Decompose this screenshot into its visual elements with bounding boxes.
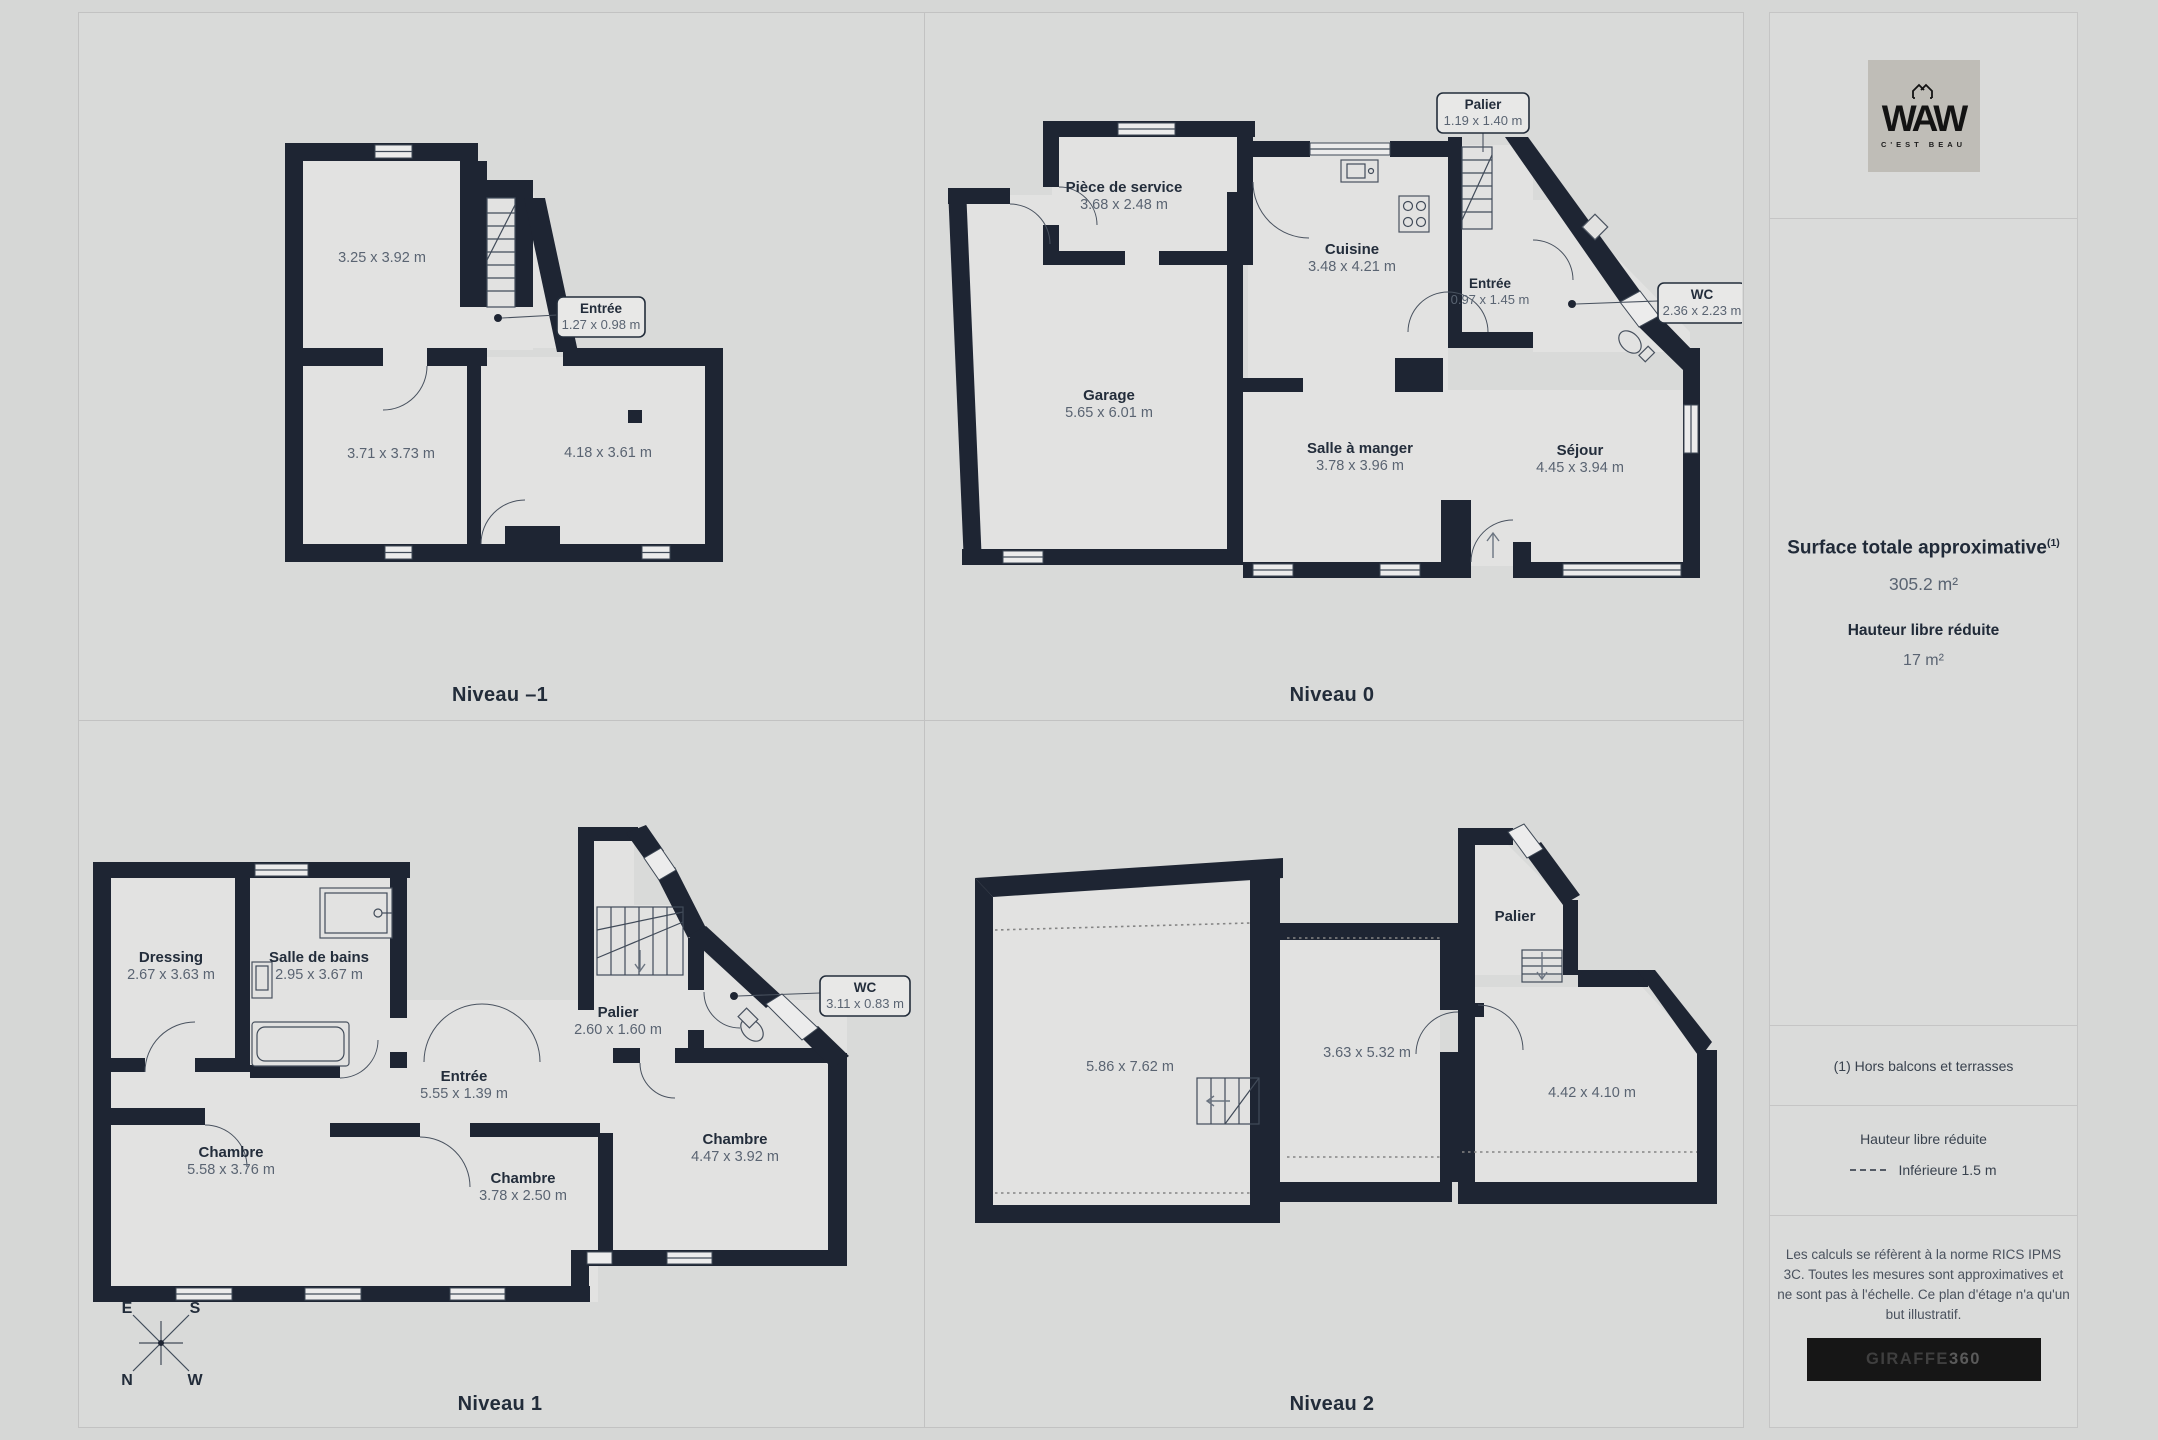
room-label: Entrée [1469, 276, 1512, 291]
room-dims: 2.95 x 3.67 m [275, 967, 363, 983]
level-label-niveau-moins-1: Niveau –1 [452, 684, 548, 706]
info-sidebar: WAW C'EST BEAU Surface totale approximat… [1769, 12, 2078, 1428]
room-dims: 2.60 x 1.60 m [574, 1022, 662, 1038]
room-dims: 2.36 x 2.23 m [1663, 303, 1742, 318]
compass-south: S [190, 1300, 201, 1317]
room-dims: 3.48 x 4.21 m [1308, 259, 1396, 275]
room-dims: 1.19 x 1.40 m [1444, 113, 1523, 128]
bathtub-icon [252, 1022, 349, 1066]
room-label: Dressing [139, 949, 203, 966]
footnote-marker: (1) [2047, 537, 2060, 549]
room-dims: 3.78 x 3.96 m [1316, 458, 1404, 474]
legend-title: Hauteur libre réduite [1770, 1131, 2077, 1147]
crown-icon [1909, 83, 1939, 99]
reduced-height-title: Hauteur libre réduite [1770, 622, 2077, 640]
room-label: Séjour [1557, 442, 1604, 459]
reduced-height-value: 17 m² [1770, 652, 2077, 670]
brand-name: WAW [1882, 100, 1965, 137]
level-label-niveau-0: Niveau 0 [1290, 684, 1375, 706]
room-label: Entrée [441, 1068, 488, 1085]
footnote-section: (1) Hors balcons et terrasses [1770, 1026, 2077, 1106]
room-dims: 4.45 x 3.94 m [1536, 460, 1624, 476]
room-label: Garage [1083, 387, 1135, 404]
room-label: Chambre [490, 1170, 555, 1187]
compass-north: N [121, 1372, 133, 1389]
floor-plates [993, 845, 1703, 1205]
room-dims: 5.55 x 1.39 m [420, 1086, 508, 1102]
room-dims: 1.27 x 0.98 m [562, 317, 641, 332]
bathroom-sink-icon [252, 962, 272, 998]
room-label: Chambre [198, 1144, 263, 1161]
room-label: Salle de bains [269, 949, 369, 966]
floorplan-page: { "sidebar": { "logo": { "brand": "WAW",… [0, 0, 2158, 1440]
kitchen-sink-icon [1341, 160, 1378, 182]
room-dims: 5.86 x 7.62 m [1086, 1059, 1174, 1075]
room-dims: 2.67 x 3.63 m [127, 967, 215, 983]
surface-summary-section: Surface totale approximative(1) 305.2 m²… [1770, 219, 2077, 1026]
room-dims: 0.97 x 1.45 m [1451, 292, 1530, 307]
floor-plan-niveau-2: 5.86 x 7.62 m 3.63 x 5.32 m 4.42 x 4.10 … [923, 719, 1742, 1426]
room-dims: 4.18 x 3.61 m [564, 445, 652, 461]
level-label-niveau-2: Niveau 2 [1290, 1393, 1375, 1415]
stove-icon [1399, 196, 1429, 232]
support-post [628, 410, 642, 423]
level-label-niveau-1: Niveau 1 [458, 1393, 543, 1415]
room-label: Entrée [580, 301, 623, 316]
room-dims: 3.78 x 2.50 m [479, 1188, 567, 1204]
room-label: Chambre [702, 1131, 767, 1148]
floor-plan-niveau-moins-1: Entrée 1.27 x 0.98 m 3.25 x 3.92 m 3.71 … [78, 12, 923, 719]
room-label: Palier [598, 1004, 639, 1021]
floor-plan-niveau-1: WC 3.11 x 0.83 m Dressing 2.67 x 3.63 m … [78, 719, 923, 1426]
disclaimer-section: Les calculs se réfèrent à la norme RICS … [1770, 1216, 2077, 1427]
room-dims: 3.71 x 3.73 m [347, 446, 435, 462]
giraffe360-suffix: 360 [1949, 1350, 1981, 1369]
room-dims: 5.58 x 3.76 m [187, 1162, 275, 1178]
legend-label: Inférieure 1.5 m [1898, 1162, 1996, 1178]
room-dims: 3.68 x 2.48 m [1080, 197, 1168, 213]
giraffe360-name: GIRAFFE [1866, 1350, 1949, 1369]
floor-plan-niveau-0: Palier 1.19 x 1.40 m WC 2.36 x 2.23 m Pi… [923, 12, 1742, 719]
legend-section: Hauteur libre réduite Inférieure 1.5 m [1770, 1106, 2077, 1216]
compass-icon: E S N W [121, 1300, 203, 1389]
room-label: Salle à manger [1307, 440, 1413, 457]
room-label: Cuisine [1325, 241, 1379, 258]
footnote-text: (1) Hors balcons et terrasses [1834, 1058, 2014, 1074]
room-label: WC [1691, 287, 1714, 302]
room-dims: 3.25 x 3.92 m [338, 250, 426, 266]
compass-west: W [187, 1372, 203, 1389]
room-dims: 3.11 x 0.83 m [826, 996, 904, 1011]
room-dims: 5.65 x 6.01 m [1065, 405, 1153, 421]
giraffe360-badge: GIRAFFE360 [1807, 1338, 2041, 1381]
agency-logo: WAW C'EST BEAU [1868, 60, 1980, 172]
room-dims: 4.47 x 3.92 m [691, 1149, 779, 1165]
dashed-line-sample [1850, 1169, 1886, 1171]
brand-tagline: C'EST BEAU [1881, 140, 1966, 149]
room-label: WC [854, 980, 877, 995]
room-dims: 3.63 x 5.32 m [1323, 1045, 1411, 1061]
room-dims: 4.42 x 4.10 m [1548, 1085, 1636, 1101]
surface-total-value: 305.2 m² [1770, 574, 2077, 595]
shower-icon [320, 888, 392, 938]
disclaimer-text: Les calculs se réfèrent à la norme RICS … [1777, 1245, 2071, 1325]
compass-east: E [122, 1300, 133, 1317]
room-label: Palier [1495, 908, 1536, 925]
room-label: Pièce de service [1066, 179, 1183, 196]
room-label: Palier [1465, 97, 1503, 112]
surface-total-title: Surface totale approximative(1) [1770, 537, 2077, 559]
agency-logo-section: WAW C'EST BEAU [1770, 13, 2077, 219]
